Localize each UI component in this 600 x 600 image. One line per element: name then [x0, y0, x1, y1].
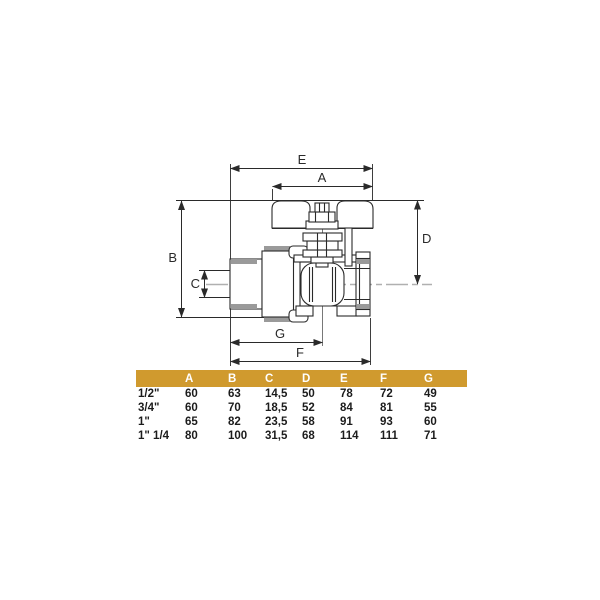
table-cell: 100 — [226, 430, 263, 442]
body-foot — [337, 306, 357, 316]
table-header-G: G — [422, 373, 467, 385]
table-cell: 52 — [300, 402, 338, 414]
stem-cap — [315, 203, 329, 212]
size-label: 1/2" — [136, 388, 183, 400]
thread-shading — [357, 259, 369, 264]
table-cell: 60 — [183, 402, 226, 414]
tailpiece — [230, 259, 262, 309]
table-cell: 93 — [378, 416, 422, 428]
gland-collar — [303, 250, 342, 257]
body-foot — [296, 306, 313, 316]
dim-label-A: A — [318, 170, 327, 185]
table-cell: 71 — [422, 430, 467, 442]
table-cell: 18,5 — [263, 402, 300, 414]
size-label: 1" — [136, 416, 183, 428]
table-cell: 80 — [183, 430, 226, 442]
table-cell: 23,5 — [263, 416, 300, 428]
dimension-table: A B C D E F G 1/2" 60 63 14,5 50 78 72 4… — [136, 370, 467, 443]
table-cell: 60 — [183, 388, 226, 400]
table-cell: 68 — [300, 430, 338, 442]
table-cell: 78 — [338, 388, 378, 400]
dim-label-G: G — [275, 326, 285, 341]
thread-shading — [357, 304, 369, 309]
handle-tab — [345, 228, 352, 266]
thread-shading — [264, 246, 290, 251]
table-header-C: C — [263, 373, 300, 385]
dim-label-B: B — [168, 250, 177, 265]
table-cell: 84 — [338, 402, 378, 414]
thread-shading — [264, 317, 290, 322]
table-header-D: D — [300, 373, 338, 385]
thread-shading — [231, 304, 257, 309]
gland-body — [307, 241, 338, 250]
valve-graphics — [230, 201, 373, 322]
dim-label-F: F — [296, 345, 304, 360]
thread-shading — [231, 259, 257, 264]
table-row: 1" 1/4 80 100 31,5 68 114 111 71 — [136, 429, 467, 443]
table-row: 3/4" 60 70 18,5 52 84 81 55 — [136, 401, 467, 415]
gland-flange — [303, 233, 342, 241]
table-row: 1/2" 60 63 14,5 50 78 72 49 — [136, 387, 467, 401]
gland-neck — [311, 257, 333, 263]
table-cell: 14,5 — [263, 388, 300, 400]
valve-datasheet-page: E A B C D G F A B C D E F G 1/2" 60 63 1… — [0, 0, 600, 600]
table-cell: 60 — [422, 416, 467, 428]
ball-valve-section-drawing: E A B C D G F — [0, 0, 600, 600]
table-cell: 55 — [422, 402, 467, 414]
dim-label-E: E — [298, 152, 307, 167]
dim-label-C: C — [191, 276, 200, 291]
table-cell: 63 — [226, 388, 263, 400]
table-header-F: F — [378, 373, 422, 385]
table-cell: 82 — [226, 416, 263, 428]
table-cell: 72 — [378, 388, 422, 400]
table-header-A: A — [183, 373, 226, 385]
table-cell: 91 — [338, 416, 378, 428]
table-row: 1" 65 82 23,5 58 91 93 60 — [136, 415, 467, 429]
dim-label-D: D — [422, 231, 431, 246]
size-label: 3/4" — [136, 402, 183, 414]
ball — [301, 263, 344, 306]
table-cell: 70 — [226, 402, 263, 414]
table-cell: 114 — [338, 430, 378, 442]
table-cell: 111 — [378, 430, 422, 442]
table-header-B: B — [226, 373, 263, 385]
size-label: 1" 1/4 — [136, 430, 183, 442]
handle-right-wing — [337, 201, 373, 228]
table-cell: 81 — [378, 402, 422, 414]
table-cell: 31,5 — [263, 430, 300, 442]
stem-hex-nut — [309, 212, 335, 222]
table-header-E: E — [338, 373, 378, 385]
table-cell: 58 — [300, 416, 338, 428]
handle-left-wing — [272, 201, 310, 228]
table-cell: 50 — [300, 388, 338, 400]
table-header-row: A B C D E F G — [136, 370, 467, 387]
table-cell: 49 — [422, 388, 467, 400]
table-cell: 65 — [183, 416, 226, 428]
